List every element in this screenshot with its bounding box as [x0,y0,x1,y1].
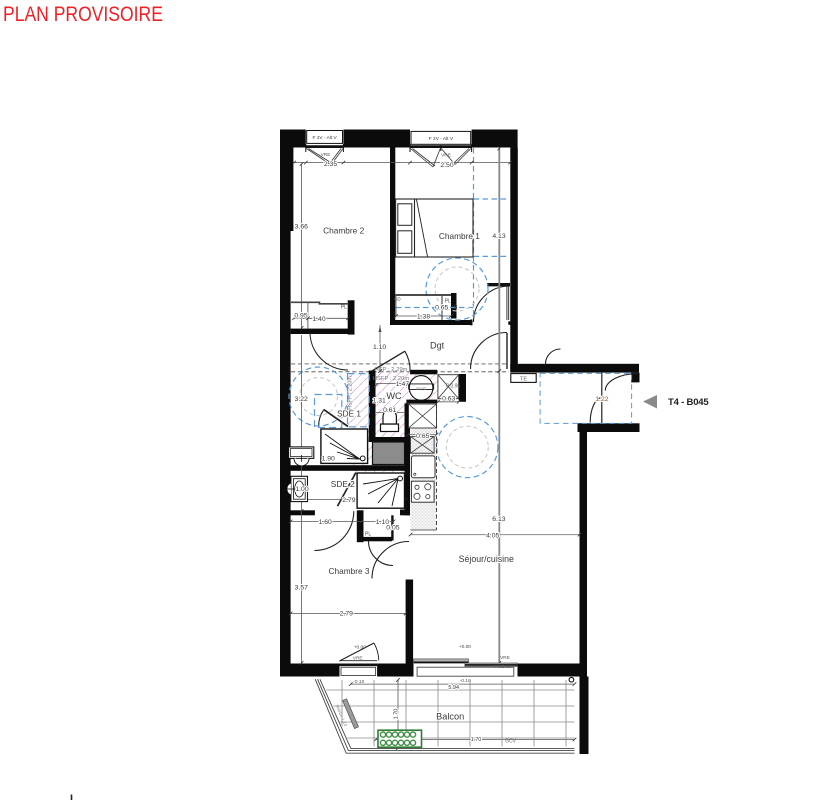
svg-text:F 2V - Alt V: F 2V - Alt V [429,136,454,142]
svg-text:Séjour/cuisine: Séjour/cuisine [459,554,514,564]
svg-text:1.40: 1.40 [312,316,325,323]
svg-text:0.95: 0.95 [294,313,307,320]
svg-text:PL: PL [445,298,451,304]
svg-text:SDE 2: SDE 2 [331,479,355,489]
svg-text:0.61: 0.61 [383,407,396,414]
svg-text:HsbGc 1.10: HsbGc 1.10 [335,704,349,728]
svg-text:8: 8 [454,305,458,311]
svg-text:HSFP : 2.20m: HSFP : 2.20m [348,376,354,410]
svg-text:PL: PL [365,532,371,538]
svg-text:+0.00: +0.00 [459,644,471,650]
svg-text:VRE: VRE [441,153,451,159]
svg-text:GCV: GCV [505,739,517,745]
svg-text:0.05: 0.05 [386,525,399,532]
svg-text:1.90: 1.90 [322,455,335,462]
svg-text:3.66: 3.66 [295,224,308,231]
svg-text:VRE: VRE [353,656,363,662]
svg-text:1.60: 1.60 [319,519,332,526]
svg-text:2.35: 2.35 [324,161,337,168]
svg-text:2.50: 2.50 [440,162,453,169]
svg-text:4.05: 4.05 [486,533,499,540]
svg-text:Balcon: Balcon [436,712,464,722]
svg-text:F 1V - Alt V: F 1V - Alt V [312,135,337,141]
svg-text:1.70: 1.70 [471,737,482,743]
svg-text:TE: TE [520,376,528,382]
svg-text:T4 - B045: T4 - B045 [668,397,709,408]
svg-text:60x45: 60x45 [416,386,426,390]
svg-text:1.31: 1.31 [373,398,386,405]
svg-text:1.22: 1.22 [595,396,608,403]
svg-text:2.79: 2.79 [342,497,355,504]
svg-text:VRE: VRE [500,655,510,661]
svg-text:-0.10: -0.10 [460,678,471,684]
svg-text:4.13: 4.13 [492,233,505,240]
svg-text:3.57: 3.57 [295,584,308,591]
svg-text:6.13: 6.13 [492,516,505,523]
svg-text:WC: WC [386,391,402,401]
svg-text:Chambre 3: Chambre 3 [328,566,369,576]
svg-text:Chambre 2: Chambre 2 [323,226,364,236]
svg-text:0.63: 0.63 [442,396,455,403]
svg-text:HSP : 2.29m: HSP : 2.29m [375,367,408,373]
svg-text:2.79: 2.79 [340,610,353,617]
svg-text:VRE: VRE [321,152,331,158]
svg-text:5.94: 5.94 [448,685,459,691]
svg-text:HSFP : 2.20m: HSFP : 2.20m [373,376,409,382]
svg-text:0.65: 0.65 [435,304,448,311]
svg-text:PRC 2V: PRC 2V [495,664,513,670]
svg-text:Dgt: Dgt [430,341,445,351]
svg-text:1.00: 1.00 [295,486,308,493]
svg-text:1.70: 1.70 [394,709,400,720]
svg-text:1.38: 1.38 [417,313,430,320]
svg-text:PL: PL [341,305,347,311]
svg-text:1.10: 1.10 [373,344,386,351]
svg-text:-0.10: -0.10 [353,679,364,685]
svg-text:0.65: 0.65 [416,433,429,440]
svg-text:+0.00: +0.00 [354,644,366,650]
svg-text:P 0.96: P 0.96 [446,384,461,390]
svg-text:3.22: 3.22 [295,396,308,403]
svg-text:CD: CD [394,297,401,302]
svg-text:Chambre 1: Chambre 1 [439,231,480,241]
